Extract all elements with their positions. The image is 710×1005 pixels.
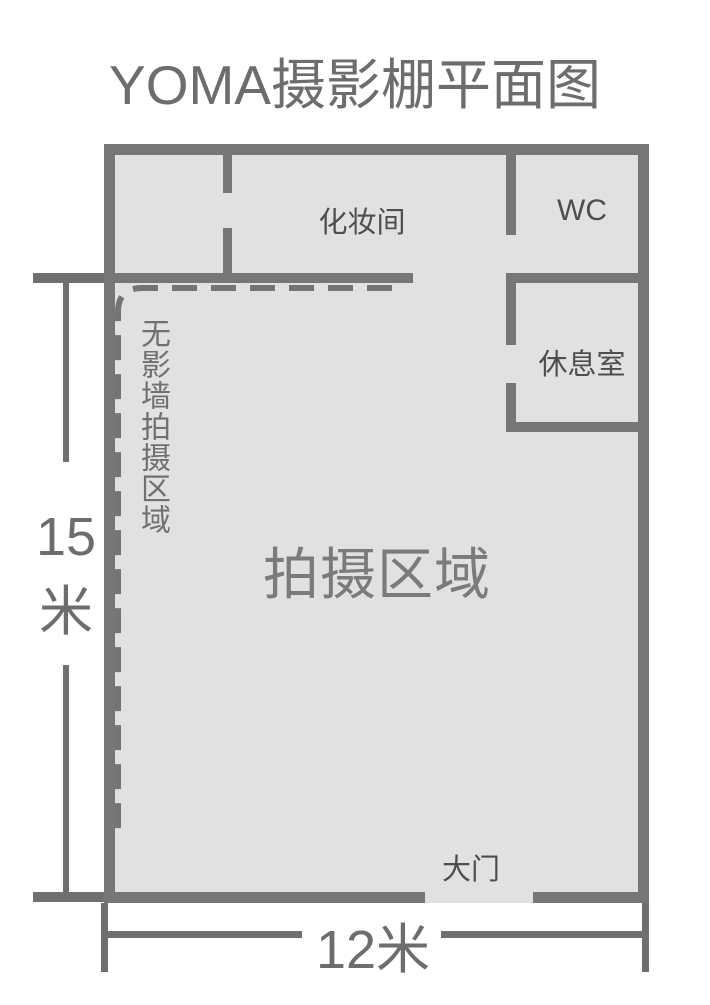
width-dimension-line-right [441,931,646,938]
height-dimension-tick-top [33,273,104,283]
height-dimension-label: 15 米 [24,500,108,650]
floorplan-page: YOMA摄影棚平面图 化妆间 WC 休息室 大门 拍摄区域 无影墙拍摄区域 15… [0,0,710,1005]
height-dimension-value: 15 [24,500,108,575]
wall-lounge-top [506,273,649,283]
wall-lounge-left-upper [506,273,516,345]
height-dimension-unit: 米 [24,575,108,650]
width-dimension-label: 12米 [288,905,458,984]
wall-outer-bottom-left [104,892,425,903]
lounge-label: 休息室 [512,341,652,383]
wall-wc-divider [506,155,516,235]
width-dimension-line-left [104,931,302,938]
main-door-label: 大门 [401,846,541,888]
wall-outer-bottom-right [533,892,649,903]
wall-outer-top [104,144,649,155]
makeup-room-label: 化妆间 [292,199,432,241]
wall-makeup-bottom [104,273,413,283]
page-title: YOMA摄影棚平面图 [0,40,710,120]
studio-floor [104,144,649,903]
wall-outer-right [638,144,649,903]
wall-makeup-divider-upper [223,155,232,193]
height-dimension-line-upper [63,283,69,462]
wall-lounge-bottom [506,422,649,432]
wc-label: WC [537,194,627,228]
shadowless-area-label: 无影墙拍摄区域 [130,318,174,535]
height-dimension-tick-bottom [33,892,104,902]
shooting-area-label: 拍摄区域 [227,530,527,611]
height-dimension-line-lower [63,665,69,892]
